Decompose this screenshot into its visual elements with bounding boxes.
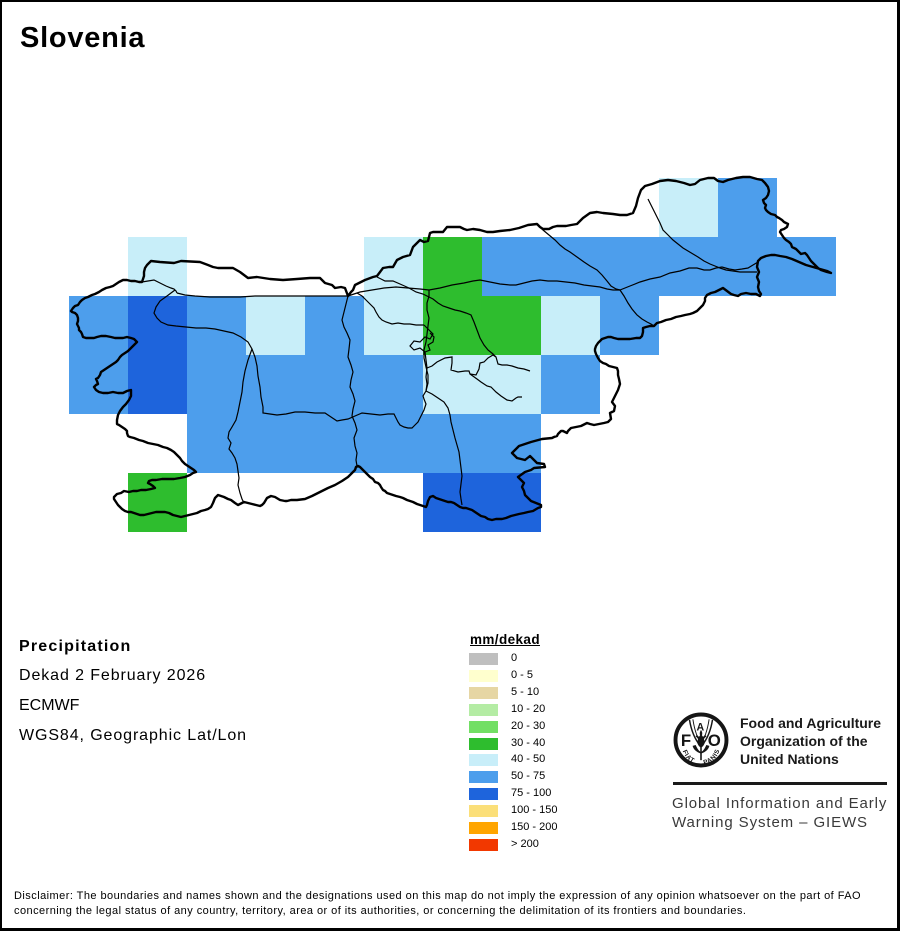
svg-text:F: F <box>681 731 691 750</box>
svg-text:O: O <box>708 731 721 750</box>
